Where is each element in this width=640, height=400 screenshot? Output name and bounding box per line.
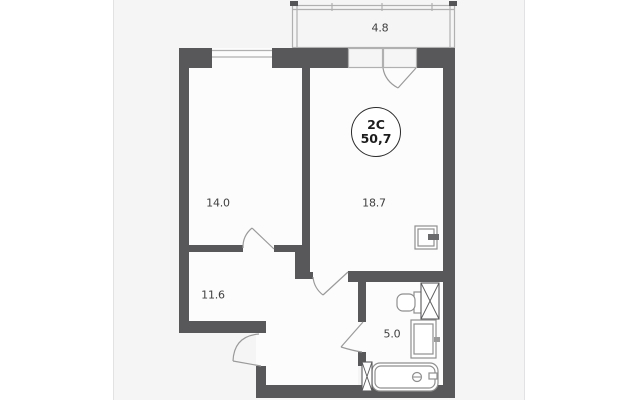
wall-bathroom-top xyxy=(348,271,443,282)
balcony-area-label: 4.8 xyxy=(372,22,389,35)
entry-door-swing-arc xyxy=(233,334,259,361)
wall-left xyxy=(179,48,189,333)
balcony-window xyxy=(349,49,383,68)
balcony-door-frame xyxy=(384,49,417,68)
wall-hallway-bottom xyxy=(179,321,266,333)
wall-corner-chunk xyxy=(295,252,310,272)
wall-room-hallway-left xyxy=(189,245,243,252)
toilet-bowl-icon xyxy=(397,294,415,311)
bathtub-tap xyxy=(429,373,437,379)
room-area-label: 14.0 xyxy=(206,197,230,210)
bathroom-area-label: 5.0 xyxy=(384,328,401,341)
floor-plan-drawing xyxy=(0,0,640,400)
kitchen-area-label: 18.7 xyxy=(362,197,386,210)
wall-top-middle xyxy=(272,48,348,68)
apartment-type-badge: 2C 50,7 xyxy=(351,107,401,157)
floors xyxy=(189,68,443,385)
apartment-type-label: 2C xyxy=(367,118,385,132)
floor-plan-image: 4.8 14.0 18.7 11.6 5.0 2C 50,7 xyxy=(0,0,640,400)
kitchen-sink-tap xyxy=(428,234,439,240)
wall-room-hallway-right xyxy=(274,245,302,252)
total-area-label: 50,7 xyxy=(361,132,392,146)
balcony-corner-mark xyxy=(449,1,457,6)
washbasin-tap xyxy=(434,337,440,342)
entry-door-opening xyxy=(256,333,266,366)
wall-room-divider xyxy=(302,68,310,252)
wall-bathroom-left-upper xyxy=(358,282,366,322)
wall-kitchen-lip xyxy=(295,272,313,279)
kitchen-floor xyxy=(310,68,443,282)
bathtub-inner xyxy=(375,366,435,388)
balcony-corner-mark xyxy=(290,1,298,6)
room-floor xyxy=(189,68,302,252)
hallway-area-label: 11.6 xyxy=(201,289,225,302)
washbasin-inner xyxy=(414,324,433,354)
wall-right xyxy=(443,48,455,398)
